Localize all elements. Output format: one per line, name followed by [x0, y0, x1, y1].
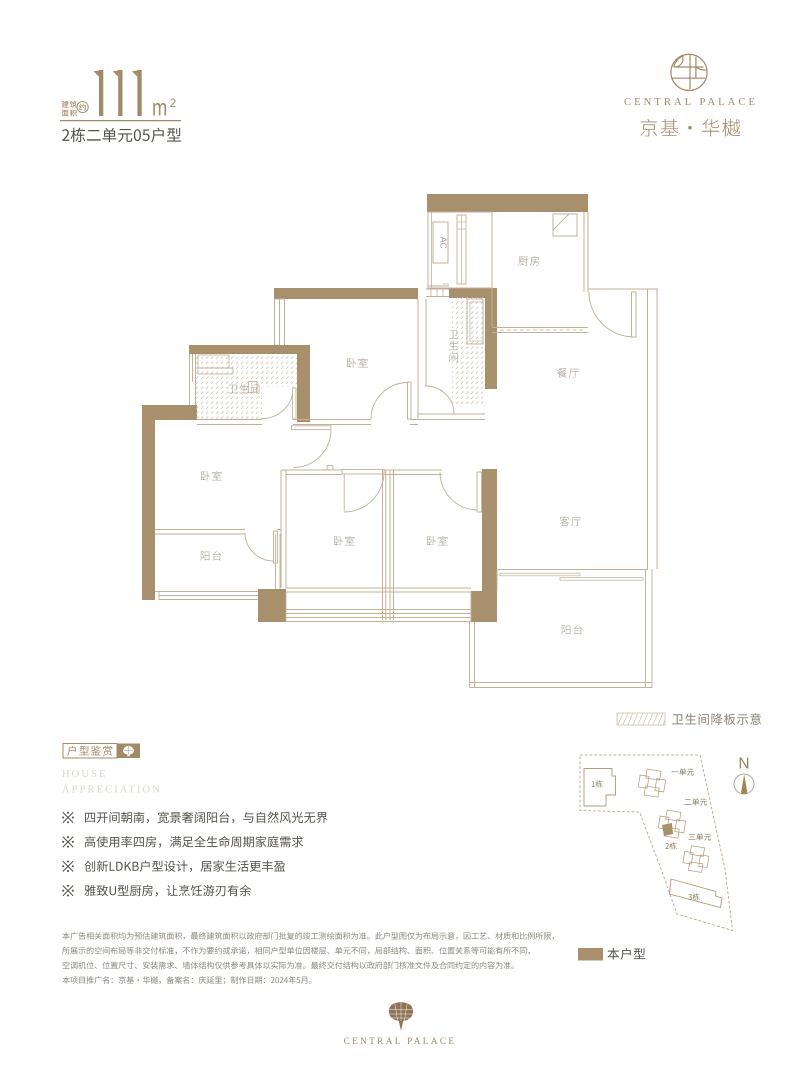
- svg-text:m: m: [152, 95, 167, 121]
- svg-text:CENTRAL PALACE: CENTRAL PALACE: [344, 1036, 457, 1046]
- svg-text:APPRECIATION: APPRECIATION: [62, 785, 162, 796]
- svg-text:AC: AC: [438, 237, 448, 249]
- svg-text:HOUSE: HOUSE: [62, 769, 108, 780]
- svg-text:CENTRAL PALACE: CENTRAL PALACE: [624, 97, 758, 108]
- svg-text:2: 2: [170, 98, 176, 110]
- svg-text:N: N: [738, 755, 749, 772]
